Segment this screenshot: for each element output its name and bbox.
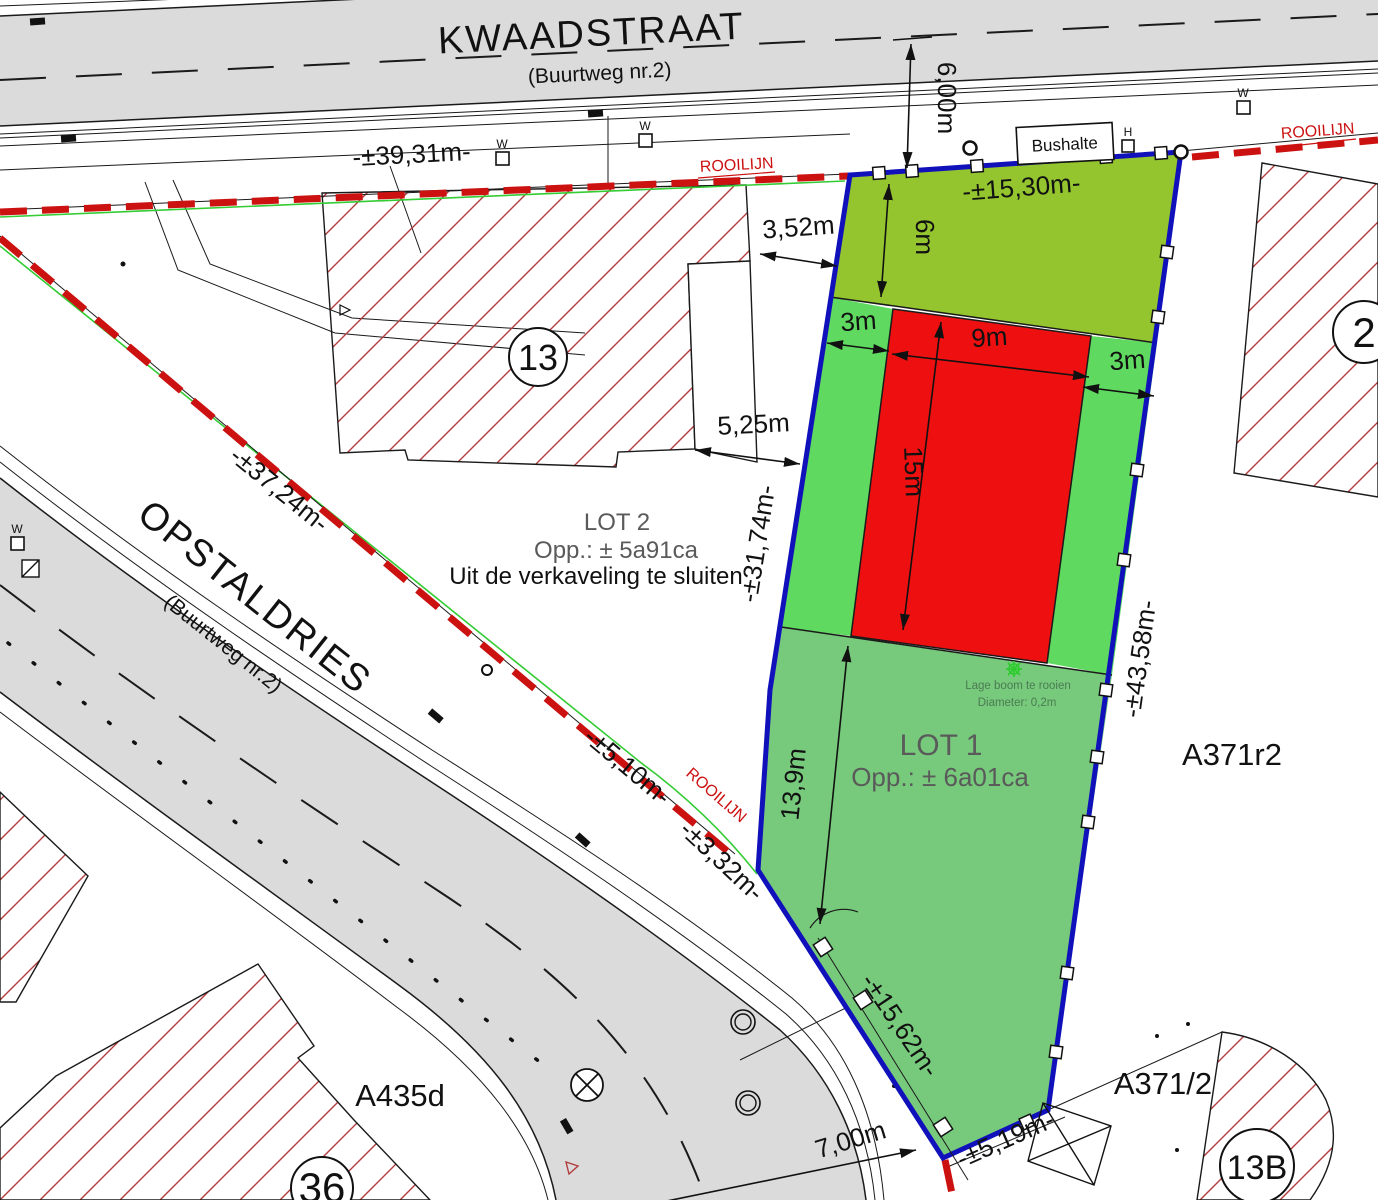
tree-icon xyxy=(1006,661,1022,677)
water-marker-icon xyxy=(639,134,652,147)
dim-top-length: -±39,31m- xyxy=(352,136,472,172)
hydrant-marker-icon xyxy=(1122,140,1134,152)
w-marker-label: W xyxy=(1237,86,1249,100)
culvert-tick-icon xyxy=(61,134,76,142)
dim-seg-a: -±5,10m- xyxy=(578,721,677,811)
tree-note-line2: Diameter: 0,2m xyxy=(978,697,1057,709)
tree-note-line1: Lage boom te rooien xyxy=(965,680,1071,692)
culvert-tick-icon xyxy=(575,832,591,847)
house-number-13b-label: 13B xyxy=(1227,1149,1288,1187)
lot1-title: LOT 1 xyxy=(900,729,983,762)
water-marker-icon xyxy=(11,537,24,550)
house-number-36: 36 xyxy=(291,1157,353,1200)
dim-road-top: 6,00m xyxy=(932,62,962,134)
water-marker-icon xyxy=(1237,101,1250,114)
dim-gap-top: 3,52m xyxy=(761,210,835,245)
bus-stop-label: Bushalte xyxy=(1031,133,1098,155)
dim-gap-mid: 5,25m xyxy=(717,407,791,441)
dim-zone-width: 9m xyxy=(970,321,1008,353)
culvert-tick-icon xyxy=(588,109,603,117)
w-marker-label: W xyxy=(496,137,508,151)
house-number-2-label: 2 xyxy=(1352,309,1375,356)
culvert-tick-icon xyxy=(30,17,45,25)
building-13 xyxy=(322,185,757,467)
hatched-square-icon xyxy=(22,560,39,577)
lot-areas xyxy=(758,152,1181,1158)
dim-side-right: 3m xyxy=(1108,344,1146,376)
lot2-note: Uit de verkaveling te sluiten xyxy=(449,563,742,590)
w-marker-label: W xyxy=(639,119,651,133)
post-marker-icon xyxy=(964,142,977,155)
water-marker-icon xyxy=(496,152,509,165)
house-number-13b: 13B xyxy=(1220,1129,1294,1200)
dim-seg-b: -±3,32m- xyxy=(674,814,770,907)
corner-post-icon xyxy=(1175,146,1188,159)
parcel-a435d: A435d xyxy=(355,1078,445,1113)
parcel-a371-2: A371/2 xyxy=(1114,1066,1212,1101)
plan-drawing: Bushalte KWAADSTRAAT (Buurtweg nr.2) OPS… xyxy=(0,0,1378,1200)
small-post-icon xyxy=(482,665,492,675)
bus-stop: Bushalte xyxy=(1016,123,1114,165)
culvert-tick-icon xyxy=(428,708,444,723)
dim-diag-length: -±37,24m- xyxy=(224,440,335,538)
dim-side-left: 3m xyxy=(839,305,877,337)
crossed-circle-icon xyxy=(571,1069,603,1101)
dim-zone-depth: 15m xyxy=(898,446,930,498)
lot2-title: LOT 2 xyxy=(584,509,650,536)
rooilijn-label-right: ROOILIJN xyxy=(1280,120,1355,142)
h-marker-label: H xyxy=(1124,125,1133,139)
lot2-area: Opp.: ± 5a91ca xyxy=(534,537,699,564)
house-number-13: 13 xyxy=(509,328,567,386)
w-marker-label: W xyxy=(11,522,23,536)
cadastral-plan: Bushalte KWAADSTRAAT (Buurtweg nr.2) OPS… xyxy=(0,0,1378,1200)
dim-front-depth: 6m xyxy=(910,219,940,255)
house-number-36-label: 36 xyxy=(299,1164,346,1200)
dim-right-edge: -±43,58m- xyxy=(1116,598,1162,719)
house-number-13-label: 13 xyxy=(518,337,558,378)
lot1-area: Opp.: ± 6a01ca xyxy=(851,762,1029,792)
parcel-a371r2: A371r2 xyxy=(1182,737,1282,772)
